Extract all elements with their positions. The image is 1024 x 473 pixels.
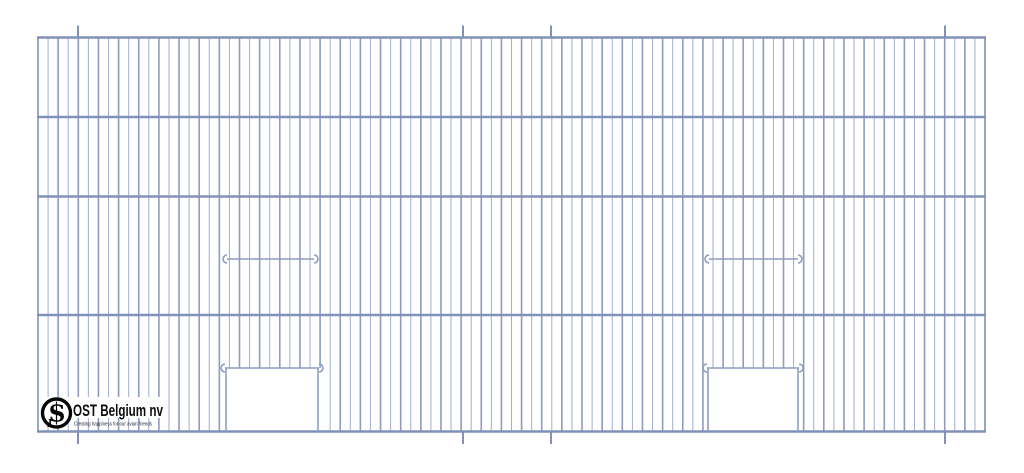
cage-panel-drawing: S J OST Belgium nv Creating happiness fo… — [0, 0, 1024, 473]
drawing-canvas: S J OST Belgium nv Creating happiness fo… — [0, 0, 1024, 473]
logo: S J OST Belgium nv Creating happiness fo… — [41, 397, 164, 428]
door-bar-hook-left — [221, 364, 225, 372]
logo-monogram-sub-letter: J — [47, 418, 52, 428]
perch-bar-hook-left — [223, 255, 227, 263]
wire-grid — [38, 38, 985, 432]
perch-bar-hook-right — [798, 255, 802, 263]
logo-title: OST Belgium nv — [73, 402, 164, 420]
perch-bar-hook-right — [314, 255, 318, 263]
perch-bar-hook-left — [705, 255, 709, 263]
logo-tagline: Creating happiness for our avian friends — [74, 422, 152, 428]
door-bar-hook-left — [703, 364, 707, 372]
door-bar-hook-right — [799, 364, 803, 372]
